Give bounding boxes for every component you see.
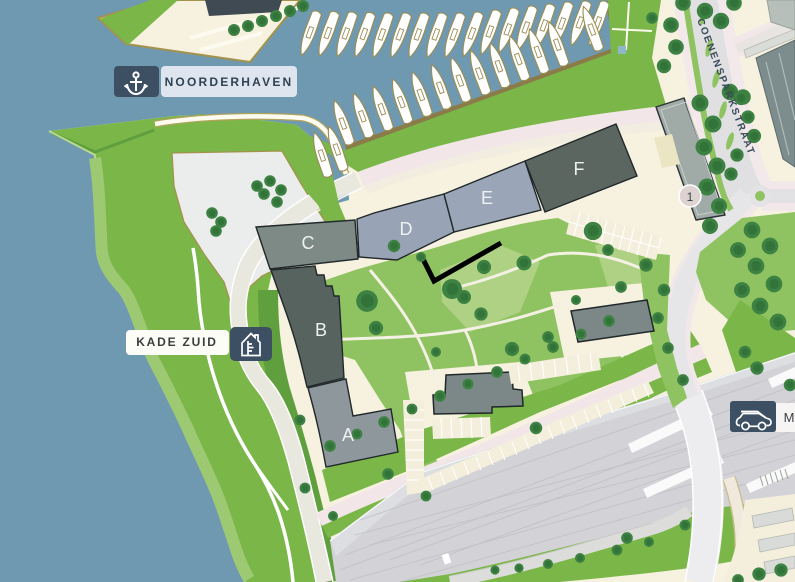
svg-text:C: C xyxy=(302,233,315,253)
svg-text:B: B xyxy=(315,320,327,340)
svg-text:1: 1 xyxy=(687,190,694,204)
svg-text:M: M xyxy=(784,410,795,425)
svg-text:D: D xyxy=(400,219,413,239)
svg-text:NOORDERHAVEN: NOORDERHAVEN xyxy=(165,75,294,89)
svg-text:E: E xyxy=(481,188,493,208)
svg-text:F: F xyxy=(574,159,585,179)
svg-text:A: A xyxy=(342,425,354,445)
svg-text:KADE ZUID: KADE ZUID xyxy=(136,335,218,349)
